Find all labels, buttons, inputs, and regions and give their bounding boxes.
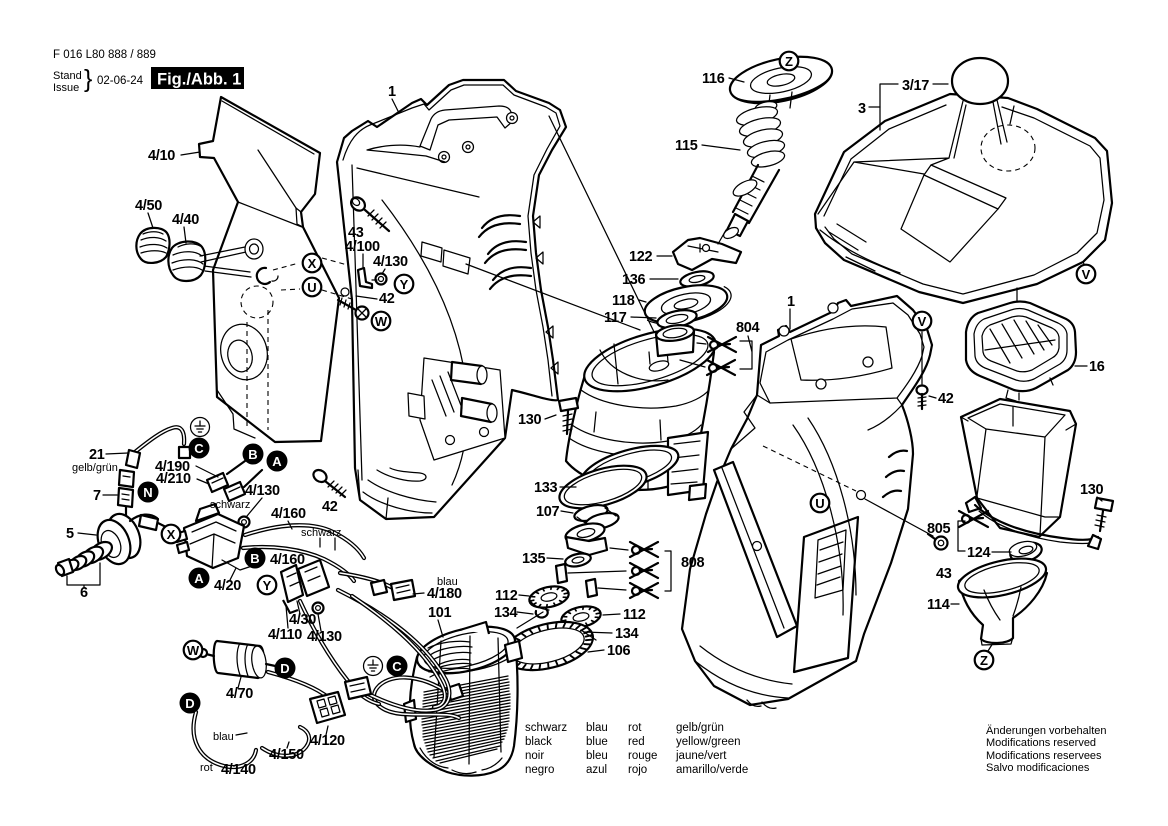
svg-text:W: W [187,643,200,658]
svg-text:X: X [167,527,176,542]
svg-text:107: 107 [536,504,560,520]
svg-text:4/20: 4/20 [214,578,241,594]
svg-text:130: 130 [518,412,542,428]
svg-text:4/110: 4/110 [268,627,302,643]
svg-text:V: V [918,314,927,329]
svg-text:117: 117 [604,310,627,326]
svg-text:amarillo/verde: amarillo/verde [676,764,748,776]
svg-text:}: } [84,65,92,93]
svg-text:Y: Y [400,277,409,292]
svg-text:122: 122 [629,249,653,265]
svg-text:F 016 L80 888 / 889: F 016 L80 888 / 889 [53,49,156,61]
svg-text:Z: Z [785,54,793,69]
svg-text:Modifications reserved: Modifications reserved [986,737,1096,749]
svg-text:Fig./Abb. 1: Fig./Abb. 1 [157,71,241,89]
svg-text:4/150: 4/150 [269,747,304,763]
svg-text:A: A [272,454,282,469]
svg-text:blue: blue [586,736,608,748]
svg-text:Y: Y [263,578,272,593]
svg-text:804: 804 [736,320,760,336]
svg-text:4/100: 4/100 [345,239,380,255]
svg-text:4/10: 4/10 [148,148,175,164]
svg-text:Stand: Stand [53,70,82,82]
svg-text:805: 805 [927,521,951,537]
svg-text:3: 3 [858,101,866,117]
svg-text:U: U [307,280,316,295]
svg-text:112: 112 [623,607,646,623]
svg-text:rouge: rouge [628,750,657,762]
svg-text:124: 124 [967,545,991,561]
svg-text:116: 116 [702,71,725,87]
svg-text:C: C [392,659,402,674]
svg-text:rot: rot [200,762,213,774]
svg-text:136: 136 [622,272,646,288]
svg-text:yellow/green: yellow/green [676,736,741,748]
svg-text:135: 135 [522,551,546,567]
svg-text:A: A [194,571,204,586]
svg-text:4/160: 4/160 [270,552,305,568]
svg-text:U: U [815,496,824,511]
svg-text:schwarz: schwarz [210,499,250,511]
svg-text:W: W [375,314,388,329]
svg-text:133: 133 [534,480,558,496]
svg-text:4/40: 4/40 [172,212,199,228]
svg-text:bleu: bleu [586,750,608,762]
svg-text:D: D [280,661,289,676]
svg-text:118: 118 [612,293,635,309]
svg-text:Salvo modificaciones: Salvo modificaciones [986,762,1090,774]
svg-text:rot: rot [628,722,642,734]
svg-text:5: 5 [66,526,74,542]
svg-text:C: C [194,441,204,456]
svg-text:noir: noir [525,750,544,762]
svg-text:blau: blau [213,731,234,743]
svg-text:schwarz: schwarz [301,527,341,539]
svg-text:B: B [250,551,259,566]
svg-text:4/130: 4/130 [245,483,280,499]
svg-text:4/70: 4/70 [226,686,253,702]
svg-text:red: red [628,736,645,748]
svg-text:azul: azul [586,764,607,776]
svg-text:4/130: 4/130 [373,254,408,270]
svg-text:1: 1 [388,84,396,100]
svg-text:115: 115 [675,138,698,154]
svg-text:130: 130 [1080,482,1104,498]
svg-text:X: X [308,256,317,271]
svg-text:4/130: 4/130 [307,629,342,645]
svg-text:808: 808 [681,555,705,571]
svg-text:101: 101 [428,605,452,621]
svg-text:B: B [248,447,257,462]
svg-text:D: D [185,696,194,711]
svg-text:rojo: rojo [628,764,647,776]
svg-text:Modifications reservees: Modifications reservees [986,750,1102,762]
svg-text:Änderungen vorbehalten: Änderungen vorbehalten [986,725,1106,737]
svg-text:blau: blau [586,722,608,734]
svg-text:114: 114 [927,597,950,613]
svg-text:3/17: 3/17 [902,78,929,94]
svg-text:134: 134 [494,605,518,621]
svg-text:schwarz: schwarz [525,722,567,734]
svg-text:42: 42 [379,291,395,307]
svg-text:1: 1 [787,294,795,310]
svg-text:106: 106 [607,643,631,659]
svg-text:21: 21 [89,447,105,463]
svg-text:V: V [1082,267,1091,282]
svg-text:4/30: 4/30 [289,612,316,628]
svg-text:4/140: 4/140 [221,762,256,778]
svg-text:134: 134 [615,626,639,642]
svg-text:4/210: 4/210 [156,471,191,487]
svg-text:Issue: Issue [53,82,79,94]
svg-text:42: 42 [938,391,954,407]
svg-text:4/120: 4/120 [310,733,345,749]
svg-text:negro: negro [525,764,554,776]
svg-text:N: N [143,485,152,500]
svg-text:43: 43 [936,566,952,582]
svg-text:4/180: 4/180 [427,586,462,602]
svg-text:jaune/vert: jaune/vert [675,750,727,762]
svg-text:4/160: 4/160 [271,506,306,522]
svg-text:7: 7 [93,488,101,504]
svg-text:42: 42 [322,499,338,515]
svg-text:black: black [525,736,552,748]
svg-text:4/50: 4/50 [135,198,162,214]
svg-text:gelb/grün: gelb/grün [72,462,118,474]
svg-text:gelb/grün: gelb/grün [676,722,724,734]
svg-text:16: 16 [1089,359,1105,375]
svg-text:112: 112 [495,588,518,604]
svg-text:Z: Z [980,653,988,668]
svg-text:02-06-24: 02-06-24 [97,75,144,87]
